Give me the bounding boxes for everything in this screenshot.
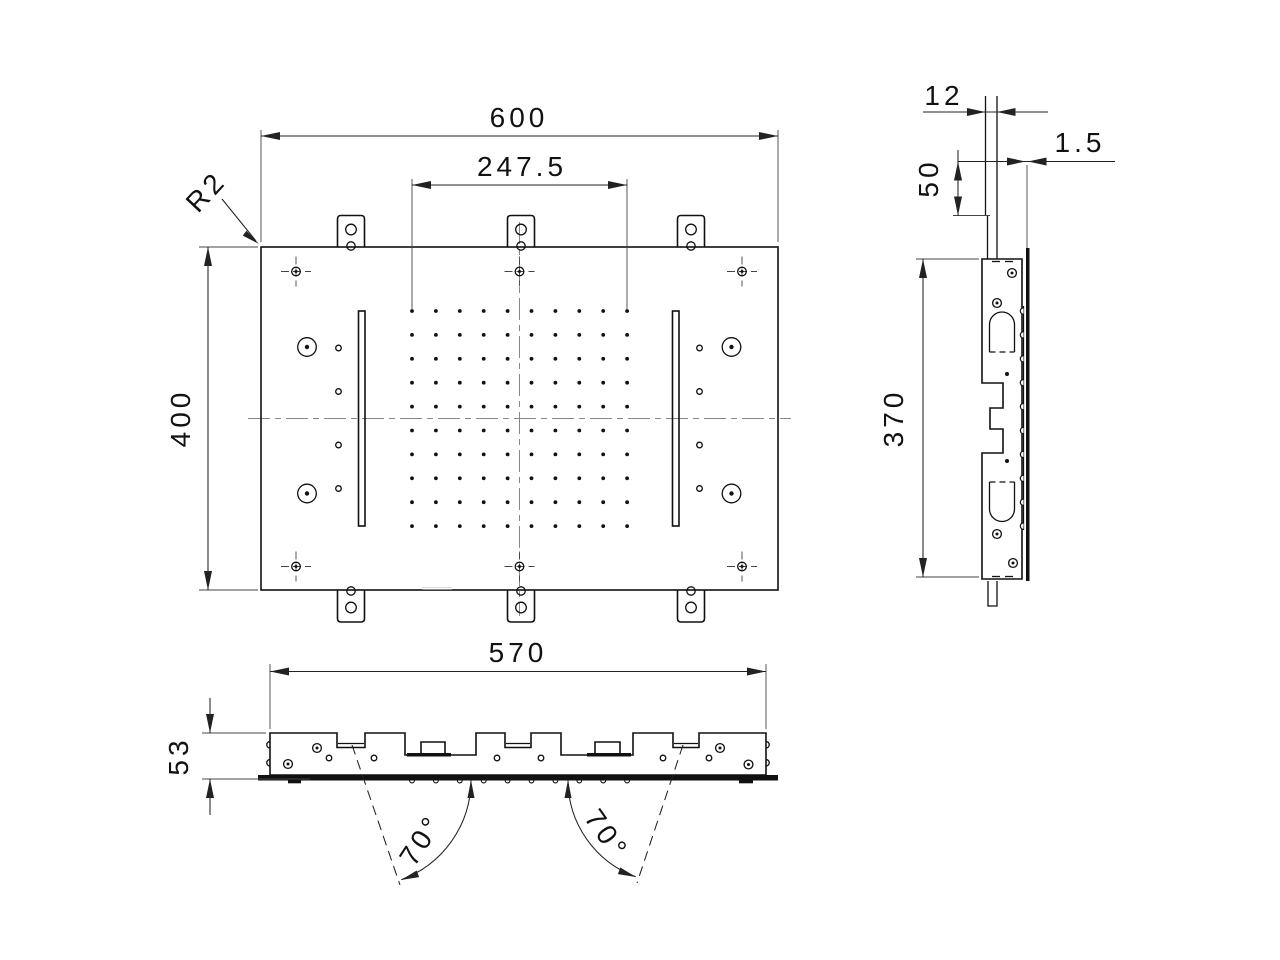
dim-thickness-1-5: 1.5 [958,127,1115,248]
side-view: 12 1.5 50 370 [878,80,1115,606]
dim-width-570: 570 [270,637,766,729]
pin-dot-lower [1005,459,1009,463]
bracket-body [982,259,1022,579]
edge-dashes [992,262,1013,577]
drawing-sheet: 600 247.5 400 R2 [0,0,1280,960]
dim-label-70-right: 70° [578,803,635,865]
dim-label-1-5: 1.5 [1055,127,1106,158]
dim-label-600: 600 [490,102,549,133]
technical-drawing: 600 247.5 400 R2 [0,0,1280,960]
dim-angle-right-70: 70° [565,745,684,883]
panel-edge [1026,248,1030,581]
dim-label-50: 50 [913,158,944,197]
dim-label-70-left: 70° [393,809,449,871]
bottom-holes [326,755,712,761]
dim-label-370: 370 [878,389,909,448]
dim-corner-radius: R2 [180,165,259,244]
boss-mark-left [288,781,301,784]
panel-plate [258,775,778,781]
dim-pipe-length-50: 50 [913,150,990,216]
dim-body-370: 370 [878,259,979,577]
tab-base-left [407,753,451,757]
tab-edge-on [988,581,997,606]
bracket-profile [270,733,766,775]
tab-base-right [587,753,631,757]
boss-mark-right [739,781,753,784]
dim-label-12: 12 [924,80,963,111]
dim-label-247-5: 247.5 [477,151,567,182]
edge-bumps [267,742,770,767]
dim-label-400: 400 [165,389,196,448]
watermark [422,587,452,591]
plan-view: 600 247.5 400 R2 [165,102,791,622]
dim-label-570: 570 [489,637,548,668]
dim-angle-left-70: 70° [352,745,475,885]
pin-dot-upper [1005,372,1009,376]
dim-height-53: 53 [163,698,310,815]
dim-height-400: 400 [165,247,258,590]
dim-label-r2: R2 [180,165,233,218]
keyhole-slots [990,312,1015,521]
bottom-view: 570 53 70° 70° [163,637,778,885]
dim-label-53: 53 [163,736,194,775]
nozzle-ticks [410,781,630,783]
